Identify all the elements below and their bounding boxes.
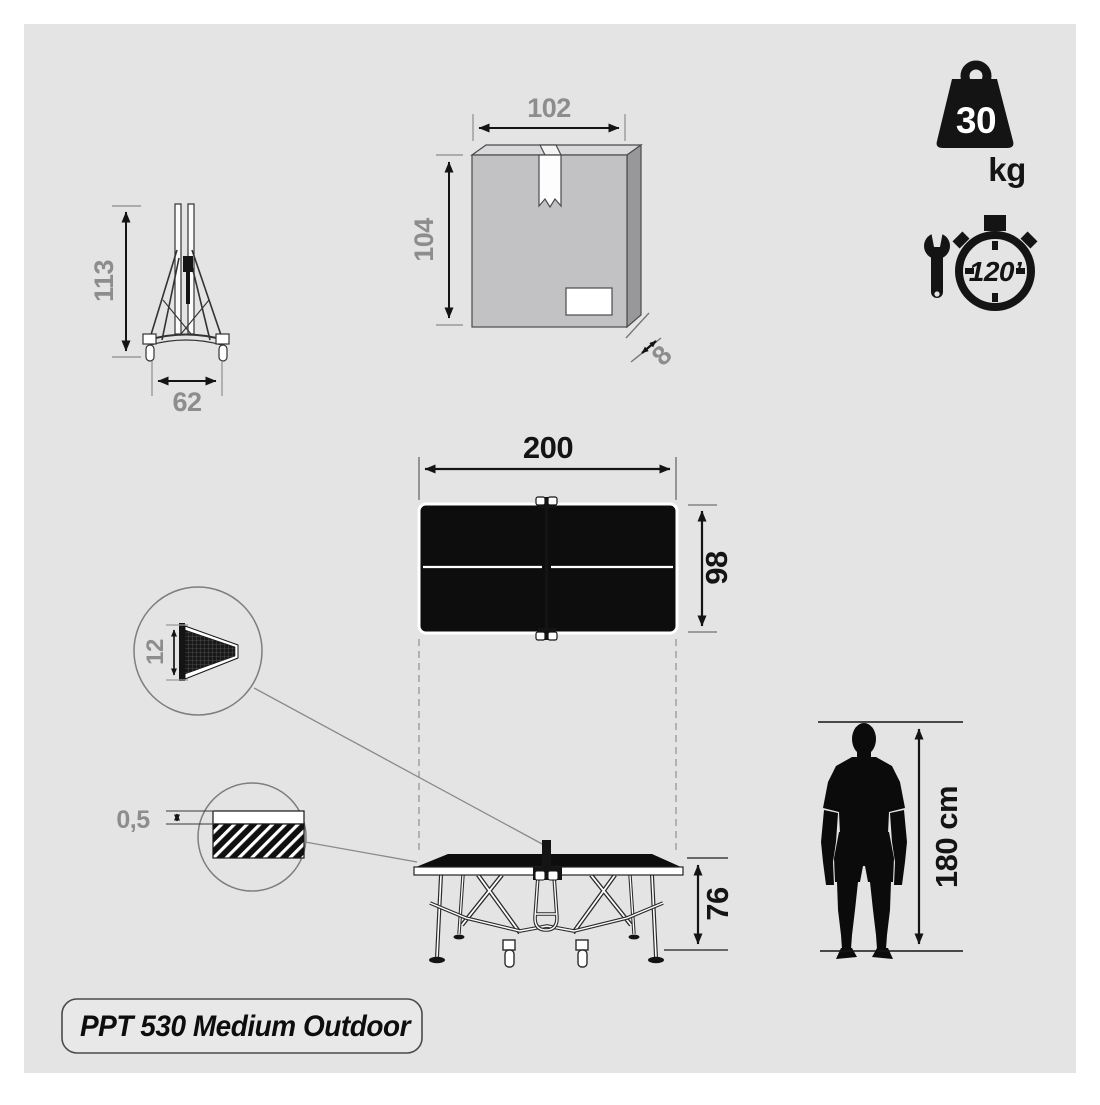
- net-height-label: 12: [142, 639, 169, 665]
- table-length-label: 200: [523, 430, 573, 465]
- side-net-post: [542, 840, 551, 868]
- product-name-label: PPT 530 Medium Outdoor: [80, 1010, 413, 1043]
- folded-lock-knob: [183, 256, 193, 272]
- foot-pad: [454, 935, 465, 940]
- foot-pad: [648, 957, 664, 963]
- weight-value-label: 30: [956, 100, 996, 141]
- table-top-view: [419, 497, 677, 640]
- person-height-label: 180 cm: [929, 786, 964, 888]
- table-height-label: 76: [700, 887, 735, 921]
- net-post-bar: [179, 623, 185, 681]
- box-height-label: 104: [409, 218, 439, 262]
- top-thickness-label: 0,5: [116, 806, 150, 834]
- top-sheet-layer: [213, 811, 304, 824]
- assembly-time-label: 120’: [969, 256, 1023, 287]
- caster-bracket: [143, 334, 156, 344]
- table-width-label: 98: [699, 551, 734, 585]
- frame-hatch-layer: [213, 824, 304, 858]
- folded-width-label: 62: [172, 387, 201, 417]
- foot-pad: [429, 957, 445, 963]
- packaging-box-view: [472, 145, 641, 327]
- caster-bracket: [216, 334, 229, 344]
- tape-strip: [539, 155, 561, 207]
- weight-unit-label: kg: [988, 151, 1026, 188]
- foot-pad: [629, 935, 640, 940]
- box-side-face: [627, 145, 641, 327]
- caster-wheel: [219, 345, 227, 361]
- shipping-label: [566, 288, 612, 315]
- box-width-label: 102: [527, 93, 571, 123]
- spec-diagram: 113 62 102 104 8 30 kg: [0, 0, 1100, 1100]
- folded-panel-left: [175, 204, 181, 334]
- product-name-badge: PPT 530 Medium Outdoor: [62, 999, 422, 1053]
- folded-height-label: 113: [89, 259, 119, 302]
- side-net-clamp: [548, 871, 558, 880]
- side-net-clamp: [535, 871, 545, 880]
- caster-wheel: [146, 345, 154, 361]
